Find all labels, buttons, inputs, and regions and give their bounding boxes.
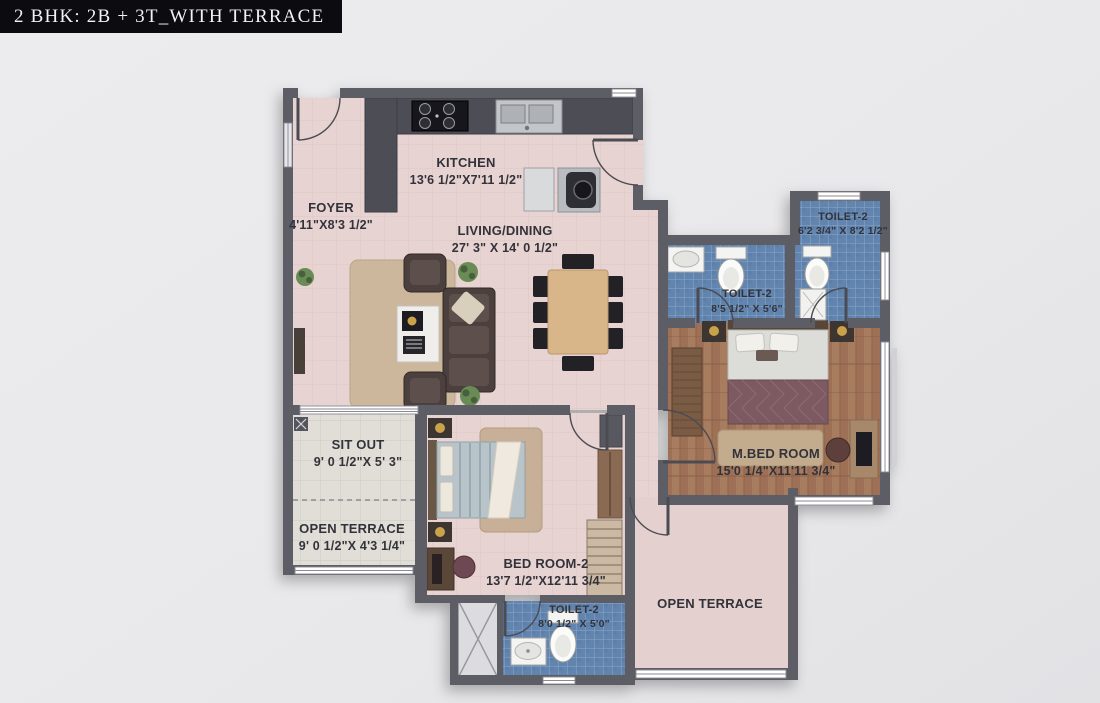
toilet-top-dims: 6'2 3/4" X 8'2 1/2" <box>798 225 888 237</box>
foyer-dims: 4'11"X8'3 1/2" <box>289 218 373 232</box>
sitout-label: SIT OUT <box>332 437 385 452</box>
bedroom2-wardrobe <box>598 415 622 518</box>
sofa <box>443 288 495 392</box>
toilet-mid-label: TOILET-2 <box>722 288 772 300</box>
terrace-left-label: OPEN TERRACE <box>299 521 405 536</box>
drain-box-icon <box>294 417 308 431</box>
master-bed <box>728 320 828 424</box>
plan-title-banner: 2 BHK: 2B + 3T_WITH TERRACE <box>0 0 342 33</box>
living-dims: 27' 3" X 14' 0 1/2" <box>452 241 558 255</box>
master-dims: 15'0 1/4"X11'11 3/4" <box>716 464 835 478</box>
kitchen-sink-icon <box>496 100 562 133</box>
foyer-label: FOYER <box>308 200 354 215</box>
toilet-mid-dims: 8'5 1/2" X 5'6" <box>711 303 783 315</box>
terrace-left-dims: 9' 0 1/2"X 4'3 1/4" <box>299 539 405 553</box>
kitchen-dims: 13'6 1/2"X7'11 1/2" <box>410 173 523 187</box>
plan-title: 2 BHK: 2B + 3T_WITH TERRACE <box>14 6 324 28</box>
utility-appliance-icon <box>524 168 600 212</box>
living-label: LIVING/DINING <box>457 223 552 238</box>
bedroom2-dims: 13'7 1/2"X12'11 3/4" <box>486 574 606 588</box>
bedroom2-bed <box>428 440 525 520</box>
terrace-right-label: OPEN TERRACE <box>657 596 763 611</box>
toilet-bottom-label: TOILET-2 <box>549 604 599 616</box>
open-terrace-right-floor <box>633 497 790 672</box>
bedroom2-label: BED ROOM-2 <box>503 556 588 571</box>
dining-table <box>548 270 608 354</box>
toilet-bottom-dims: 8'0 1/2" X 5'0" <box>538 618 610 630</box>
floor-plan-svg: KITCHEN 13'6 1/2"X7'11 1/2" FOYER 4'11"X… <box>0 0 1100 703</box>
coffee-table <box>397 306 439 362</box>
floor-plan-page: KITCHEN 13'6 1/2"X7'11 1/2" FOYER 4'11"X… <box>0 0 1100 703</box>
kitchen-label: KITCHEN <box>436 155 495 170</box>
toilet-top-label: TOILET-2 <box>818 211 868 223</box>
sitout-dims: 9' 0 1/2"X 5' 3" <box>314 455 402 469</box>
stove-icon <box>412 101 468 131</box>
master-label: M.BED ROOM <box>732 446 820 461</box>
corridor-floor <box>633 208 658 505</box>
tv-console <box>294 328 305 374</box>
